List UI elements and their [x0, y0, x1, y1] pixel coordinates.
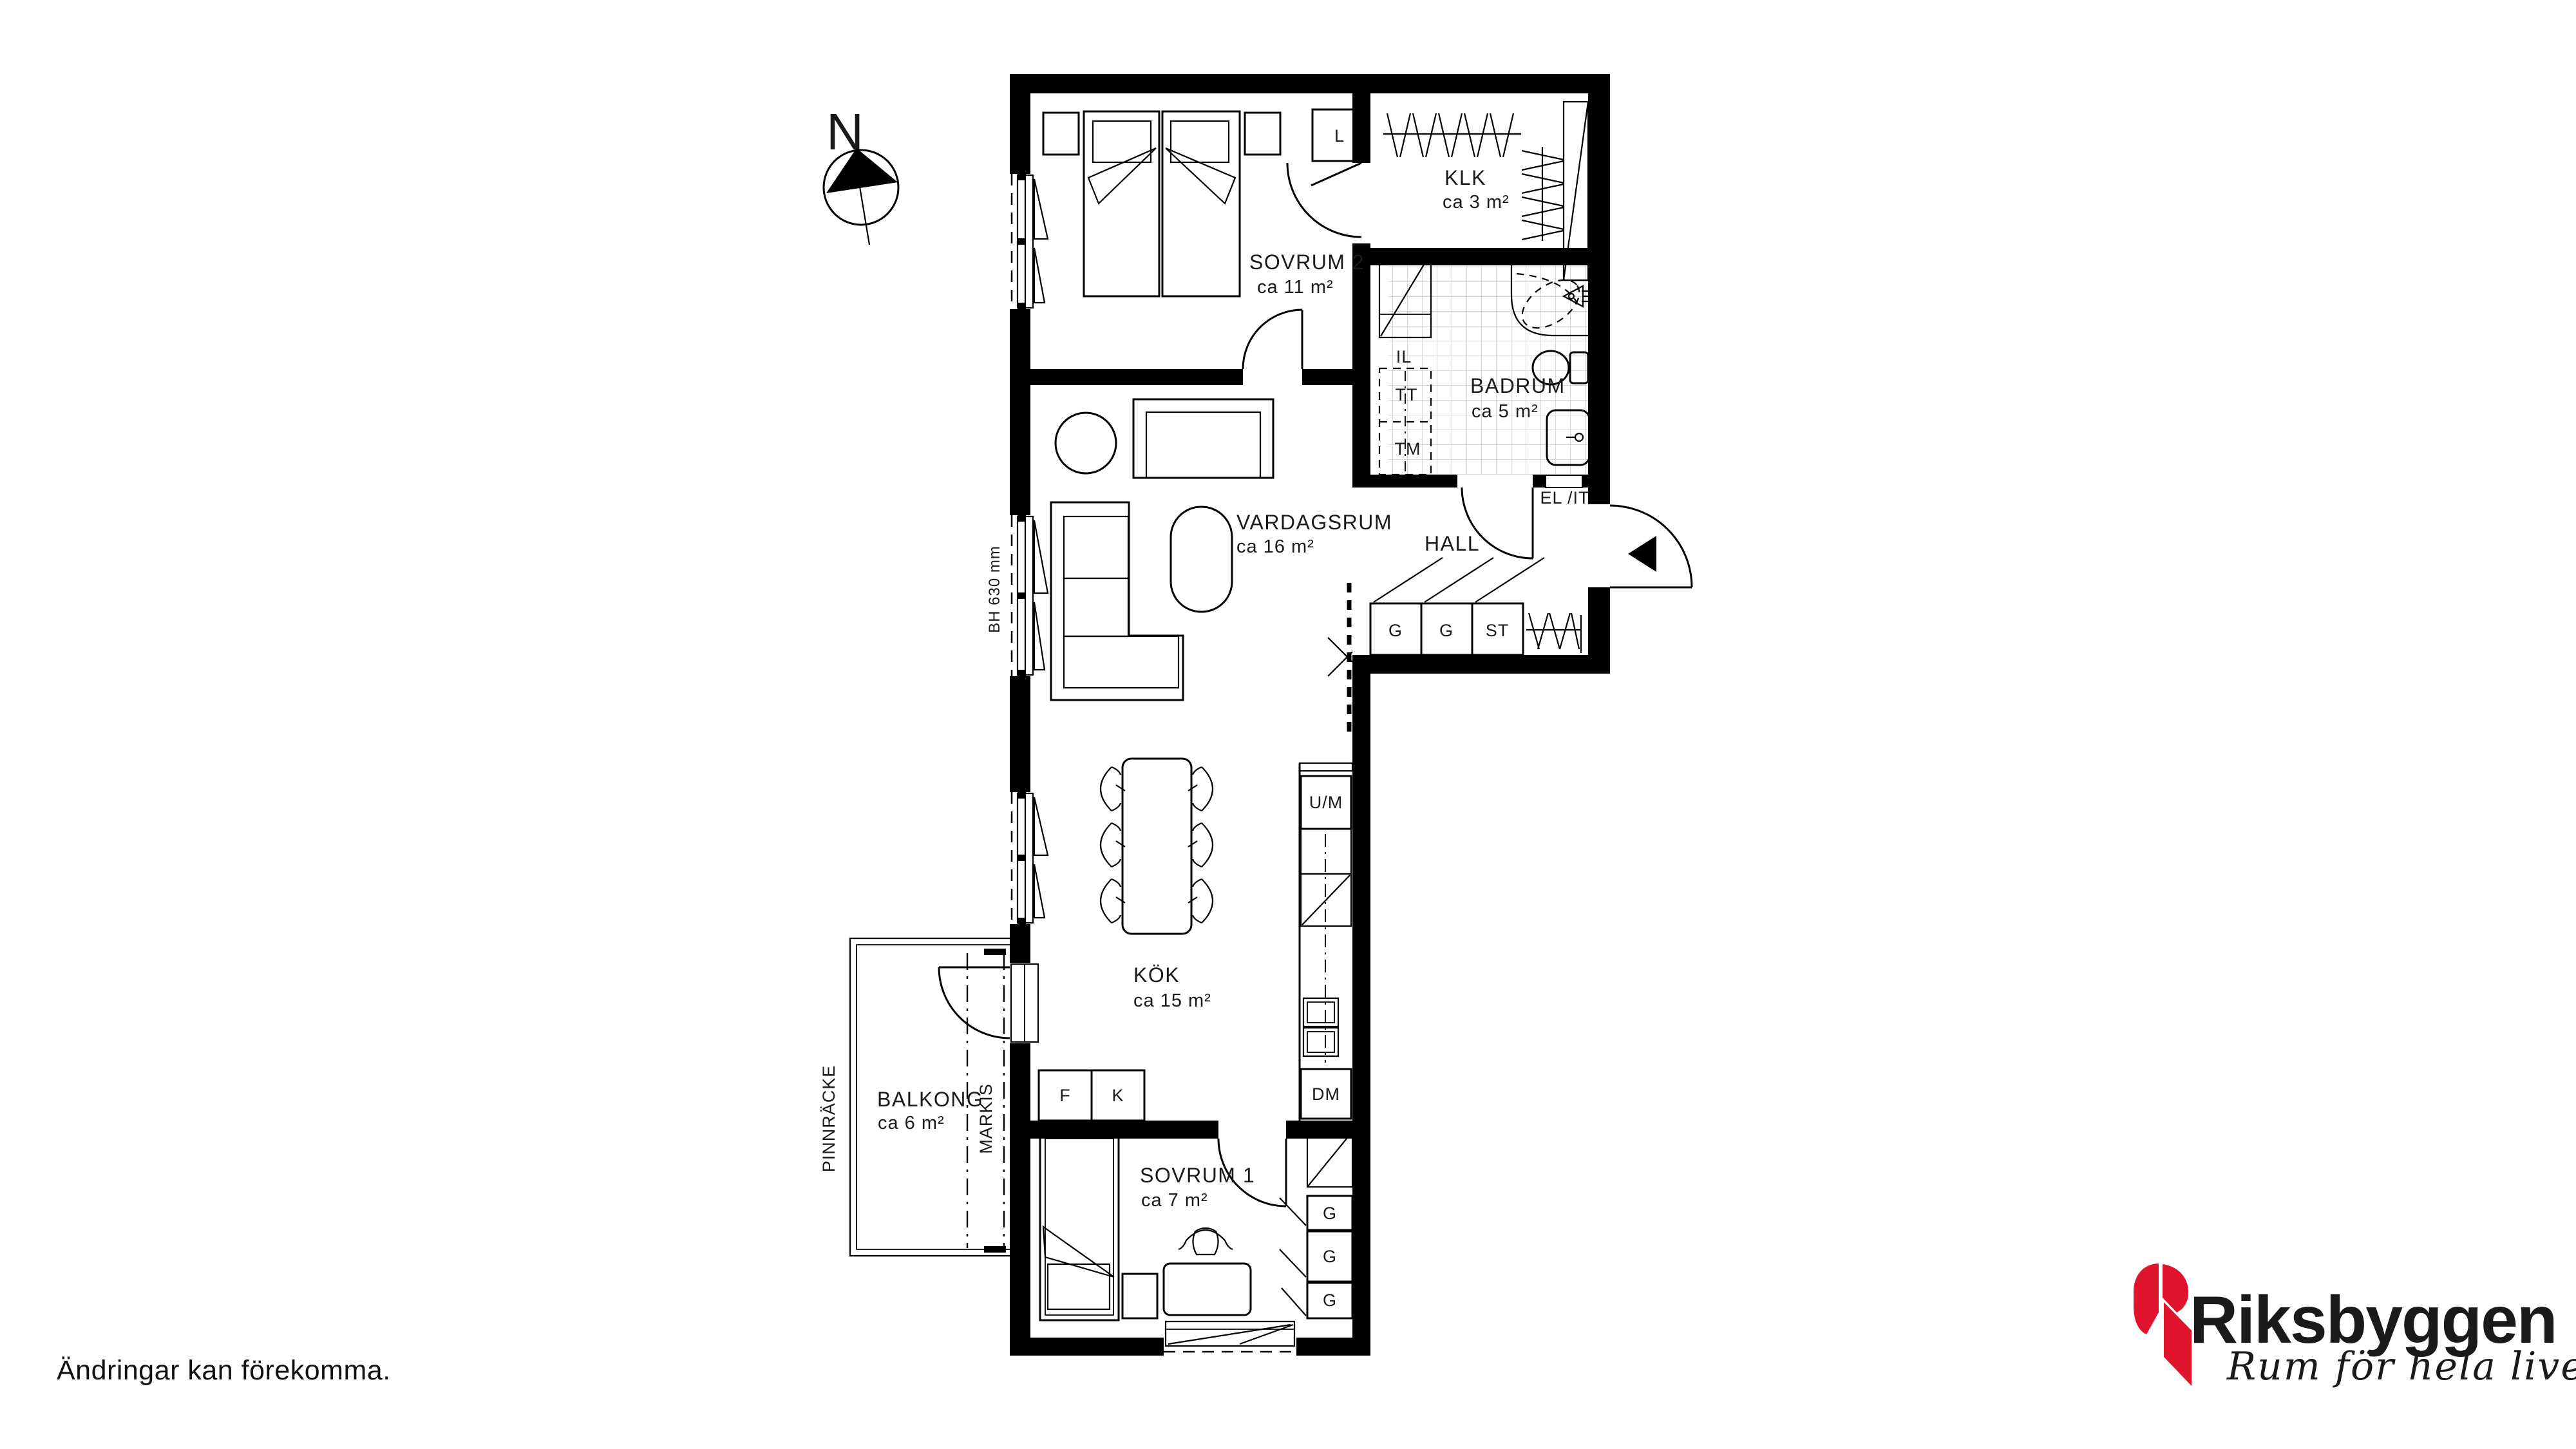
hall-cabinets	[1370, 558, 1544, 655]
room-area-sovrum2: ca 11 m²	[1257, 277, 1334, 298]
window-vardagsrum	[1007, 515, 1048, 676]
desk	[1164, 1228, 1251, 1315]
window-sovrum1	[1164, 1321, 1296, 1356]
room-label-hall: HALL	[1425, 532, 1480, 555]
floor-plan-canvas: SOVRUM 2 ca 11 m² KLK ca 3 m² BADRUM ca …	[0, 0, 2576, 1449]
section-line	[1328, 583, 1352, 737]
room-label-kok: KÖK	[1133, 963, 1180, 987]
label-k: K	[1112, 1086, 1124, 1105]
coat-rail	[1526, 613, 1581, 653]
room-area-badrum: ca 5 m²	[1472, 401, 1539, 422]
brand-tagline: Rum för hela livet	[2226, 1344, 2576, 1389]
window-kok	[1007, 792, 1048, 924]
label-tt: TT	[1396, 385, 1418, 404]
label-s1-g2: G	[1323, 1247, 1337, 1266]
label-f: F	[1059, 1086, 1071, 1105]
room-area-vardagsrum: ca 16 m²	[1236, 536, 1314, 557]
rotated-annotations: BH 630 mm PINNRÄCKE MARKIS	[819, 545, 1003, 1172]
door-balkong	[939, 963, 1038, 1043]
disclaimer-text: Ändringar kan förekomma.	[57, 1355, 391, 1386]
door-entrance	[1610, 506, 1692, 587]
label-tm: TM	[1395, 439, 1421, 459]
label-s1-g3: G	[1323, 1291, 1337, 1310]
label-hall-g2: G	[1439, 621, 1454, 640]
label-um: U/M	[1309, 793, 1343, 812]
room-area-klk: ca 3 m²	[1443, 192, 1510, 213]
room-label-badrum: BADRUM	[1470, 374, 1566, 397]
wardrobe-column	[1280, 1132, 1352, 1318]
stove	[1303, 998, 1338, 1056]
room-label-sovrum1: SOVRUM 1	[1140, 1164, 1255, 1187]
north-arrow-icon: N	[824, 103, 898, 245]
door-sovrum2	[1243, 310, 1302, 369]
room-label-balkong: BALKONG	[877, 1088, 983, 1111]
room-label-vardagsrum: VARDAGSRUM	[1236, 511, 1392, 534]
bedside-table	[1122, 1274, 1157, 1318]
label-pinnracke: PINNRÄCKE	[819, 1065, 838, 1173]
label-il: IL	[1396, 347, 1412, 366]
room-area-kok: ca 15 m²	[1133, 990, 1211, 1011]
clothes-rail-side	[1522, 147, 1564, 241]
label-linen: L	[1334, 126, 1345, 146]
sofa	[1051, 502, 1183, 700]
room-label-sovrum2: SOVRUM 2	[1249, 251, 1365, 274]
single-bed	[1040, 1133, 1119, 1320]
label-s1-g1: G	[1323, 1204, 1337, 1223]
el-it-recess	[1546, 475, 1582, 488]
coffee-table	[1171, 507, 1232, 612]
label-dm: DM	[1312, 1084, 1340, 1104]
tv-bench	[1133, 399, 1273, 478]
room-label-klk: KLK	[1444, 166, 1486, 189]
door-klk	[1287, 163, 1361, 237]
label-el-it: EL /IT	[1540, 488, 1589, 507]
window-sovrum2	[1007, 174, 1048, 309]
clothes-rail-top	[1383, 113, 1521, 157]
riksbyggen-logo: Riksbyggen Rum för hela livet	[2134, 1264, 2576, 1389]
room-area-balkong: ca 6 m²	[878, 1113, 945, 1133]
kok-fixtures	[1039, 759, 1352, 1121]
label-hall-st: ST	[1486, 621, 1510, 640]
label-hall-g1: G	[1388, 621, 1403, 640]
label-bh: BH 630 mm	[986, 545, 1003, 633]
dining-table	[1101, 759, 1213, 934]
room-area-sovrum1: ca 7 m²	[1141, 1190, 1208, 1211]
fridge-freezer	[1039, 1070, 1144, 1121]
label-markis: MARKIS	[976, 1083, 996, 1154]
kitchen-counter	[1300, 763, 1352, 1121]
riksbyggen-logo-mark	[2134, 1264, 2192, 1386]
double-bed	[1084, 111, 1240, 296]
entrance-arrow-icon	[1628, 536, 1656, 572]
